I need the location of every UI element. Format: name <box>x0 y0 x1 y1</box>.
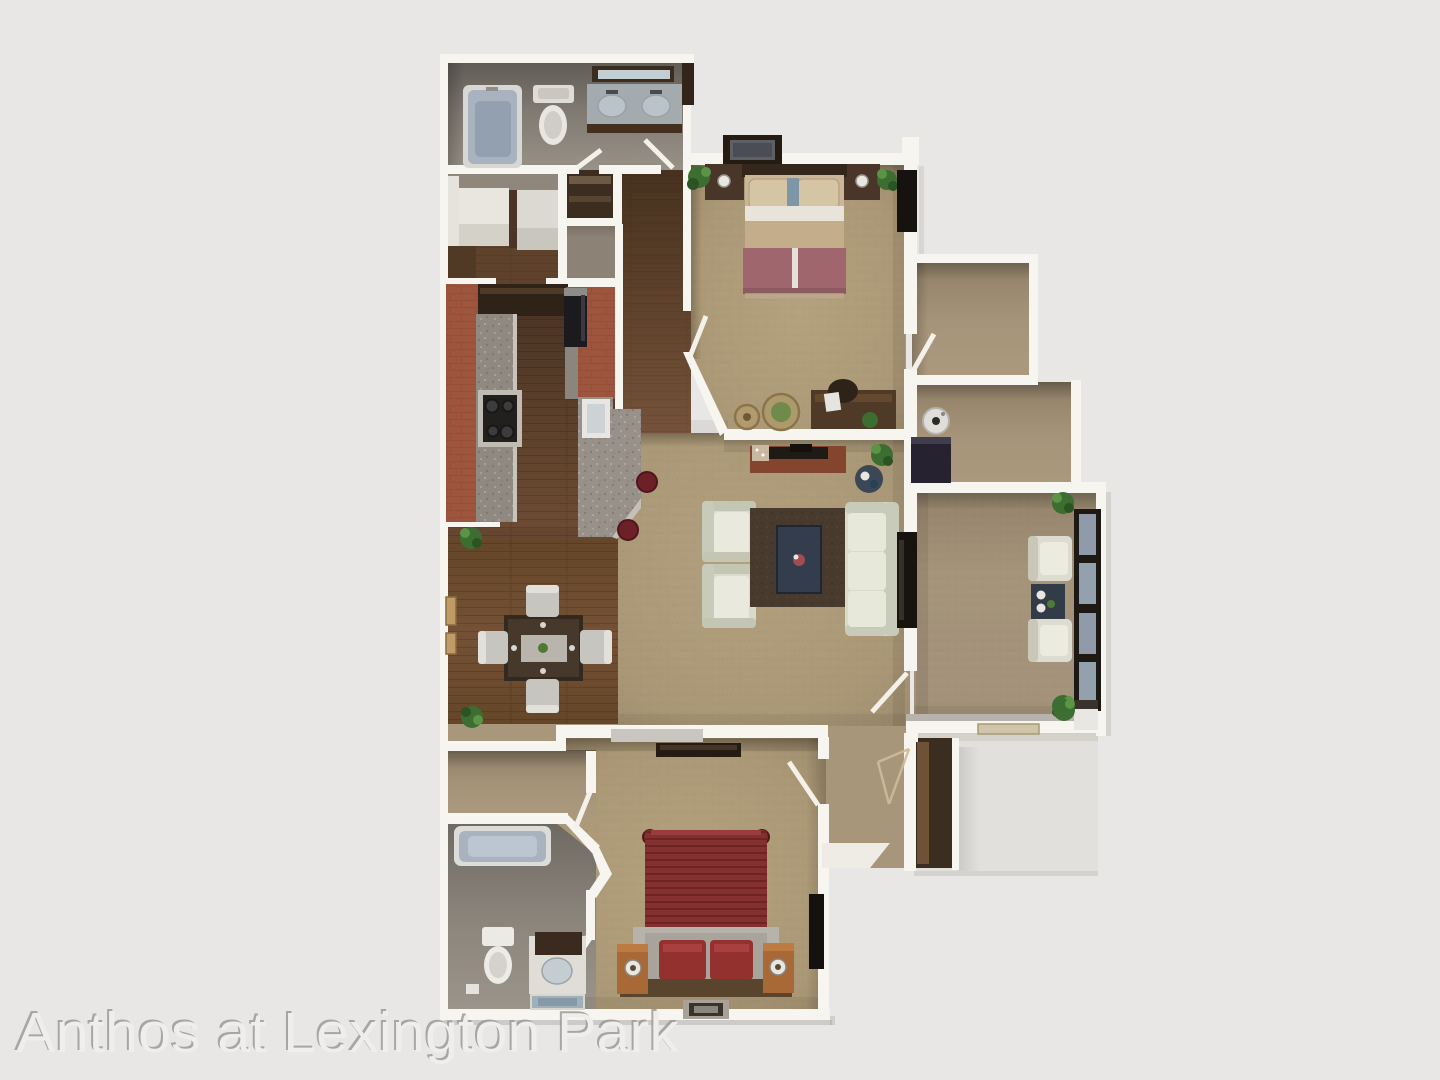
svg-text:Anthos at Lexington Park: Anthos at Lexington Park <box>16 1001 680 1065</box>
